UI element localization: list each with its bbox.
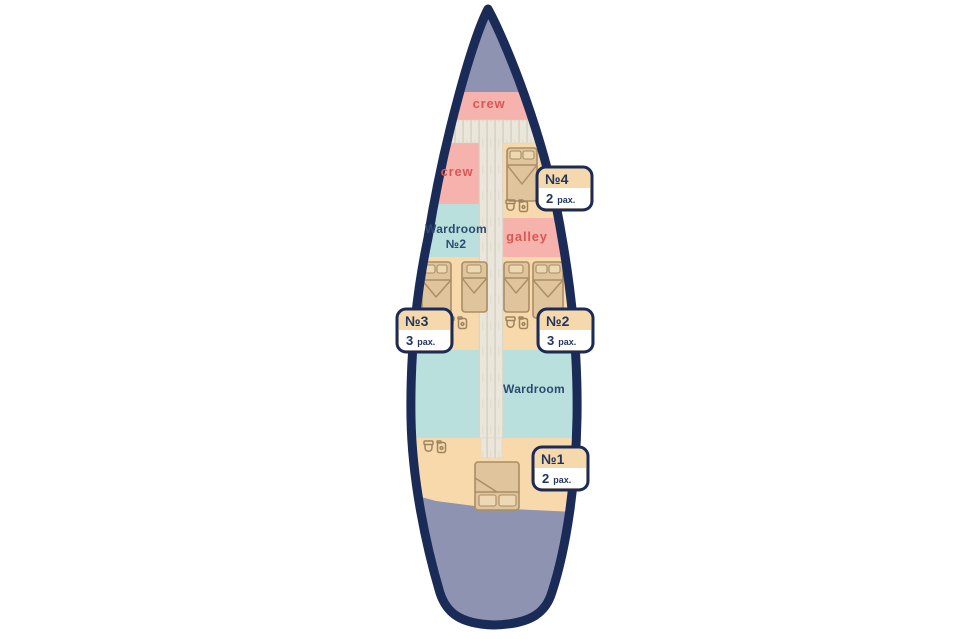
- pillow-icon: [536, 265, 547, 273]
- cabin-2-id: №2: [546, 313, 570, 329]
- pillow-icon: [479, 495, 496, 506]
- cabin-4-id: №4: [545, 171, 569, 187]
- wardroom2-label-line1: Wardroom: [425, 222, 487, 236]
- corridor-stub-floor: [481, 438, 502, 458]
- pillow-icon: [523, 151, 534, 159]
- yacht-deck-plan-diagram: crew crew Wardroom №2 galley Wardroom №4…: [0, 0, 958, 639]
- crew-bow-label: crew: [473, 96, 506, 111]
- pillow-icon: [467, 265, 481, 273]
- cabin-3-id: №3: [405, 313, 429, 329]
- pillow-icon: [510, 151, 521, 159]
- page: crew crew Wardroom №2 galley Wardroom №4…: [0, 0, 958, 639]
- galley-label: galley: [506, 229, 548, 244]
- cabin-4-badge: №4 2pax.: [537, 167, 592, 210]
- cabin-2-badge: №2 3pax.: [538, 309, 593, 352]
- pillow-icon: [499, 495, 516, 506]
- pillow-icon: [549, 265, 560, 273]
- cabin-1-id: №1: [541, 451, 565, 467]
- cabin-1-badge: №1 2pax.: [533, 447, 588, 490]
- crew-port-label: crew: [441, 164, 474, 179]
- wardroom2-label-line2: №2: [446, 237, 467, 251]
- wardroom-label: Wardroom: [503, 382, 565, 396]
- pillow-icon: [509, 265, 523, 273]
- pillow-icon: [437, 265, 447, 273]
- cabin-3-badge: №3 3pax.: [397, 309, 452, 352]
